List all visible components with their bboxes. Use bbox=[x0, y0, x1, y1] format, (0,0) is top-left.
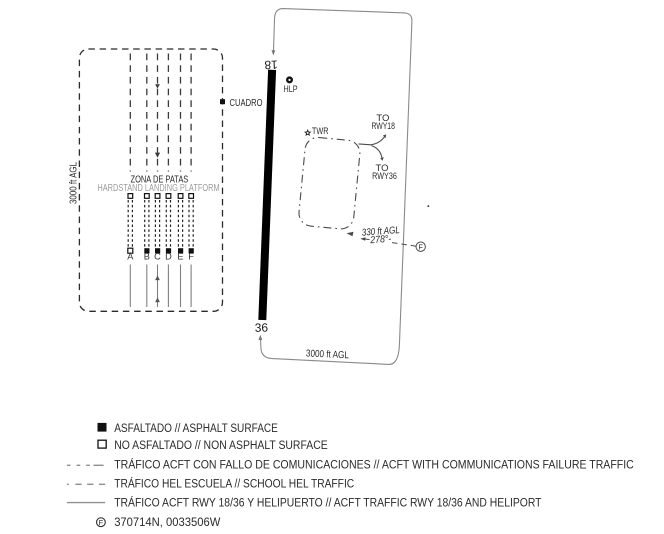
svg-text:F: F bbox=[188, 252, 194, 262]
svg-text:F: F bbox=[418, 243, 423, 252]
svg-text:TWR: TWR bbox=[312, 126, 329, 137]
svg-text:NO ASFALTADO // NON ASPHALT SU: NO ASFALTADO // NON ASPHALT SURFACE bbox=[114, 438, 328, 452]
svg-text:HLP: HLP bbox=[284, 84, 298, 95]
svg-text:3000 ft AGL: 3000 ft AGL bbox=[306, 348, 350, 361]
svg-text:18: 18 bbox=[264, 57, 278, 71]
svg-text:ASFALTADO // ASPHALT SURFACE: ASFALTADO // ASPHALT SURFACE bbox=[114, 421, 278, 435]
svg-text:A: A bbox=[127, 252, 134, 262]
svg-text:C: C bbox=[154, 252, 161, 262]
svg-text:TRÁFICO ACFT RWY 18/36 Y HELIP: TRÁFICO ACFT RWY 18/36 Y HELIPUERTO // A… bbox=[114, 494, 542, 509]
svg-text:CUADRO: CUADRO bbox=[230, 97, 263, 109]
svg-text:TRÁFICO HEL ESCUELA // SCHOOL: TRÁFICO HEL ESCUELA // SCHOOL HEL TRAFFI… bbox=[114, 476, 354, 491]
svg-text:D: D bbox=[165, 252, 172, 262]
svg-text:370714N, 0033506W: 370714N, 0033506W bbox=[114, 515, 221, 529]
svg-text:F: F bbox=[99, 518, 104, 527]
svg-text:278°-: 278°- bbox=[369, 234, 392, 247]
svg-text:RWY18: RWY18 bbox=[371, 121, 395, 132]
svg-text:36: 36 bbox=[254, 320, 268, 334]
svg-text:E: E bbox=[177, 252, 183, 262]
svg-text:3000 ft AGL: 3000 ft AGL bbox=[68, 162, 79, 204]
svg-text:TRÁFICO ACFT CON FALLO DE COMU: TRÁFICO ACFT CON FALLO DE COMUNICACIONES… bbox=[114, 457, 634, 472]
svg-text:B: B bbox=[144, 252, 150, 262]
svg-text:RWY36: RWY36 bbox=[372, 171, 397, 182]
svg-text:HARDSTAND LANDING PLATFORM: HARDSTAND LANDING PLATFORM bbox=[97, 183, 219, 194]
